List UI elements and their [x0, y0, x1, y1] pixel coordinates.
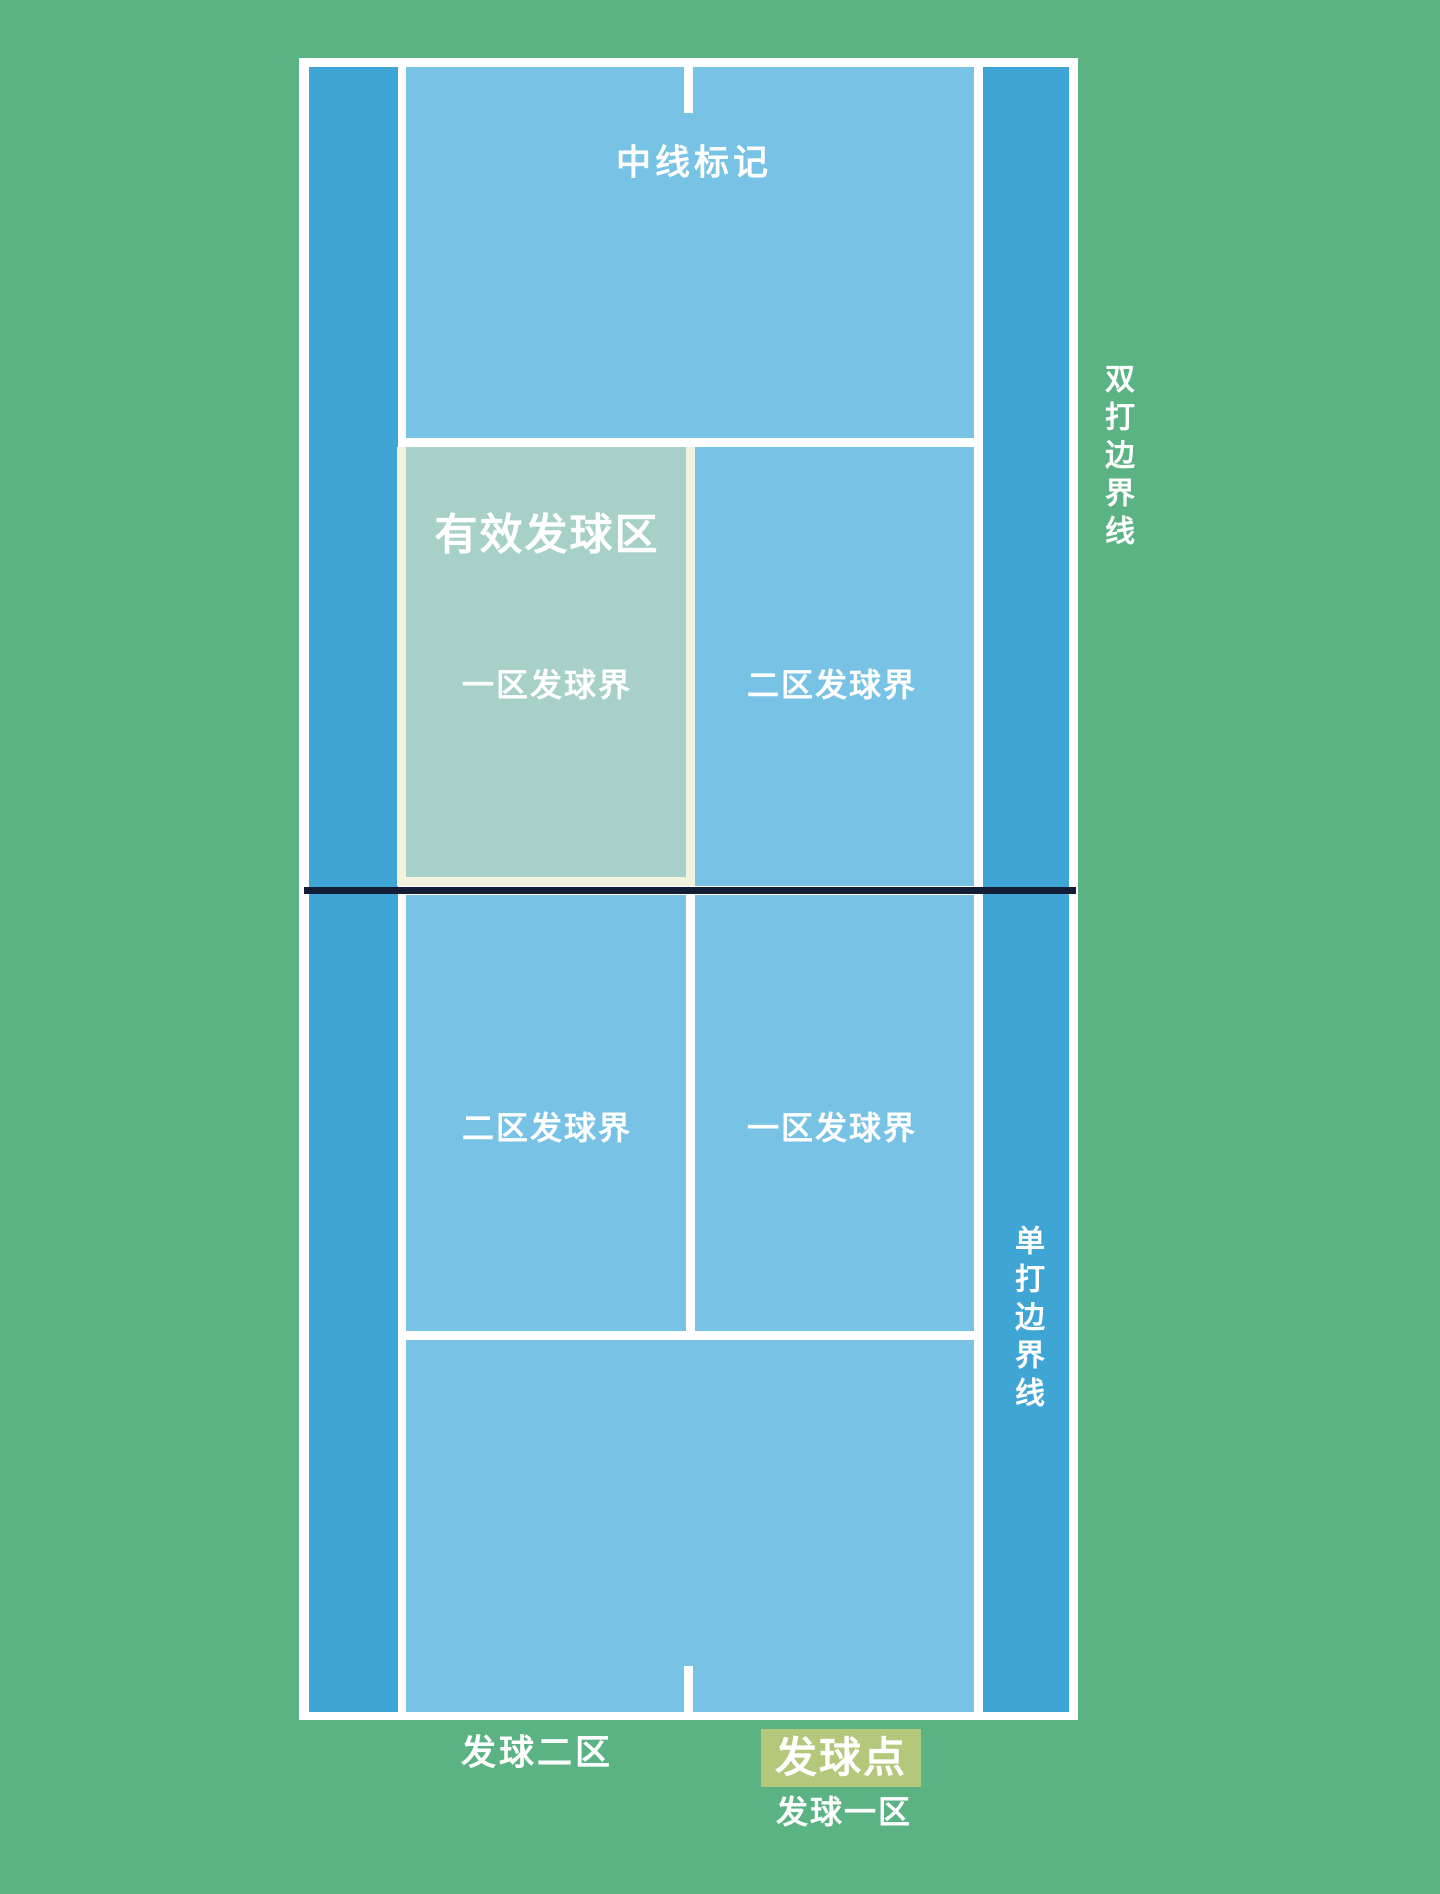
- singles-sideline-label: 单打边界线: [1011, 1225, 1041, 1415]
- upper-left-service-box-label: 一区发球界: [462, 669, 632, 701]
- service-point-label: 发球点: [775, 1737, 907, 1779]
- backcourt-bottom: [406, 1340, 974, 1712]
- service-point-badge: 发球点: [761, 1729, 921, 1787]
- backcourt-top: [406, 67, 974, 438]
- center-mark-label: 中线标记: [616, 146, 772, 181]
- valid-service-area-label: 有效发球区: [435, 515, 660, 558]
- upper-right-service-box-label: 二区发球界: [747, 669, 917, 701]
- center-mark-top: [684, 67, 693, 113]
- lower-left-service-box-label: 二区发球界: [462, 1112, 632, 1144]
- court-outline: [299, 58, 1078, 1720]
- lower-right-service-box-label: 一区发球界: [747, 1112, 917, 1144]
- doubles-sideline-label: 双打边界线: [1101, 363, 1131, 553]
- tennis-court-diagram: { "diagram": { "type": "tennis-court-ser…: [0, 0, 1440, 1894]
- center-mark-bottom: [684, 1666, 693, 1712]
- service-zone-1-label: 发球一区: [776, 1796, 912, 1828]
- service-zone-2-label: 发球二区: [461, 1736, 613, 1771]
- net-line: [304, 887, 1076, 894]
